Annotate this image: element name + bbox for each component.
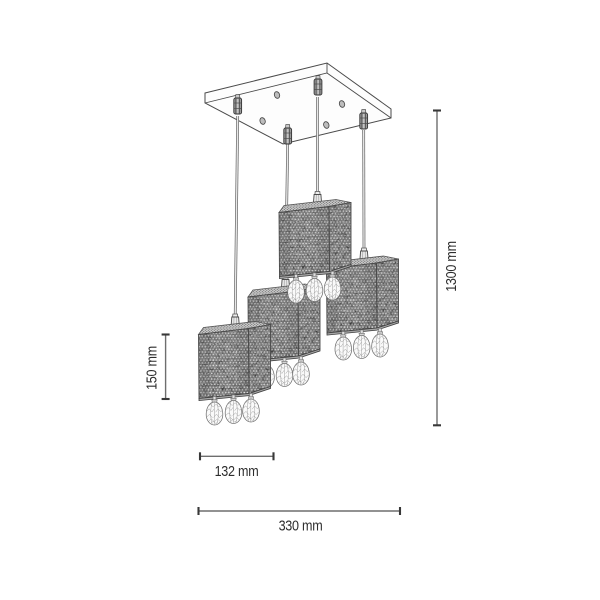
svg-text:150 mm: 150 mm	[144, 346, 160, 390]
svg-text:1300 mm: 1300 mm	[443, 241, 459, 292]
svg-text:330 mm: 330 mm	[279, 518, 323, 534]
svg-text:132 mm: 132 mm	[215, 463, 259, 479]
